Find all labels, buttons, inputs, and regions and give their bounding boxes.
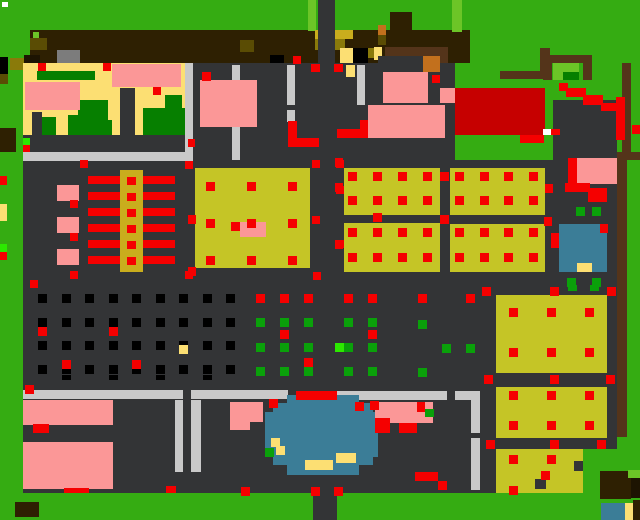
map-dot-1 <box>103 63 111 71</box>
green-plaza-b-dot-2-1 <box>368 367 377 376</box>
field-b-dots-dot-0-3 <box>529 172 538 181</box>
map-dot-66 <box>23 138 30 145</box>
black-plaza-dot-1-0 <box>38 318 47 327</box>
black-plaza-dot-2-0 <box>38 341 47 350</box>
market-aisle-4 <box>127 225 136 233</box>
map-dot-19 <box>70 271 78 279</box>
field-a-dots-dot-1-1 <box>373 196 382 205</box>
bottom-grass-11 <box>633 500 640 520</box>
field-d-dots-dot-1-2 <box>504 253 513 262</box>
map-dot-41 <box>607 287 616 296</box>
big-field-dots-dot-0-2 <box>288 182 297 191</box>
plaza-dashes-2 <box>156 375 165 380</box>
field-c-dots-dot-0-0 <box>348 228 357 237</box>
top-strip-32 <box>563 72 579 80</box>
green-plaza-b-dot-0-0 <box>344 318 353 327</box>
map-dot-8 <box>632 125 640 134</box>
market-stalls-8 <box>88 240 120 248</box>
green-plaza-a-dot-2-1 <box>280 367 289 376</box>
field-d-dots-dot-1-0 <box>455 253 464 262</box>
bottom-buildings-5 <box>375 418 390 433</box>
bottom-grass-4 <box>617 152 640 160</box>
top-strip-4 <box>308 0 316 31</box>
field-d-dots-dot-0-2 <box>504 228 513 237</box>
map-dot-9 <box>80 160 88 168</box>
trees-area-1 <box>0 128 16 152</box>
market-stalls-2 <box>88 192 120 200</box>
field-c-dots-dot-1-3 <box>423 253 432 262</box>
bottom-grass-10 <box>625 503 633 520</box>
map-dot-67 <box>23 145 30 152</box>
big-field-dots-dot-1-1 <box>247 219 256 228</box>
map-dot-68 <box>188 139 195 147</box>
black-plaza-dot-1-1 <box>62 318 71 327</box>
black-plaza-dot-0-1 <box>62 294 71 303</box>
field-c-dots-dot-1-1 <box>373 253 382 262</box>
big-field-dots-dot-2-0 <box>206 256 215 265</box>
trees-area-6 <box>165 95 182 108</box>
green-plaza-a-dot-0-0 <box>256 318 265 327</box>
buildings-20 <box>57 249 79 265</box>
black-plaza-dot-1-3 <box>109 318 118 327</box>
map-dot-50 <box>541 471 550 480</box>
green-plaza-a-dot-1-0 <box>256 343 265 352</box>
field-a-dots-dot-0-0 <box>348 172 357 181</box>
ponds-6 <box>305 460 333 470</box>
map-dot-55 <box>355 402 364 411</box>
field-b-dots-dot-0-1 <box>480 172 489 181</box>
rfield1-dots-dot-0-1 <box>547 308 556 317</box>
field-b-dots-dot-1-2 <box>504 196 513 205</box>
bottom-grass-7 <box>628 470 640 478</box>
field-b-dots-dot-0-0 <box>455 172 464 181</box>
buildings-16 <box>601 103 617 111</box>
light-roads-10 <box>471 400 480 433</box>
black-plaza-dot-1-2 <box>85 318 94 327</box>
market-aisle-2 <box>127 193 136 201</box>
field-b-dots-dot-1-3 <box>529 196 538 205</box>
map-dot-42 <box>484 375 493 384</box>
map-dot-0 <box>38 63 46 71</box>
black-plaza-dot-3-2 <box>85 365 94 374</box>
bottom-grass-9 <box>601 503 625 520</box>
green-plaza-a-dot-0-1 <box>280 318 289 327</box>
black-plaza-dot-2-7 <box>203 341 212 350</box>
black-plaza-dot-2-3 <box>109 341 118 350</box>
map-dot-75 <box>442 344 451 353</box>
map-dot-73 <box>466 294 475 303</box>
map-dot-77 <box>466 344 475 353</box>
map-dot-45 <box>486 440 495 449</box>
black-plaza-dot-3-0 <box>38 365 47 374</box>
market-stalls-0 <box>88 176 120 184</box>
buildings-1 <box>383 72 428 103</box>
green-plaza-red-row-b-dot-0-0 <box>344 294 353 303</box>
map-dot-52 <box>25 385 34 394</box>
map-dot-5 <box>311 64 320 72</box>
map-dot-81 <box>62 360 71 369</box>
plaza-dashes-3 <box>203 375 212 380</box>
green-plaza-red-row-a-dot-0-1 <box>280 294 289 303</box>
big-field-dots-dot-1-0 <box>206 219 215 228</box>
buildings-5 <box>543 129 551 135</box>
map-dot-71 <box>304 358 313 367</box>
market-aisle-5 <box>127 241 136 249</box>
ponds-11 <box>577 263 592 272</box>
map-dot-26 <box>440 215 449 224</box>
bottom-grass-6 <box>600 471 631 499</box>
map-dot-24 <box>335 240 343 249</box>
map-dot-57 <box>311 487 320 496</box>
plaza-dashes-0 <box>62 375 71 380</box>
buildings-12 <box>588 188 607 202</box>
top-strip-20 <box>57 50 80 63</box>
ponds-10 <box>348 453 355 463</box>
market-aisle-3 <box>127 209 136 217</box>
trees-area-8 <box>40 120 55 135</box>
map-dot-3 <box>202 72 211 81</box>
light-roads-12 <box>175 400 183 472</box>
bottom-buildings-8 <box>33 424 49 433</box>
map-dot-38 <box>425 409 434 417</box>
field-b-dots-dot-0-2 <box>504 172 513 181</box>
map-dot-25 <box>440 172 449 181</box>
top-strip-10 <box>30 38 47 50</box>
buildings-4 <box>520 135 544 143</box>
map-dot-61 <box>70 233 78 241</box>
bottom-buildings-1 <box>23 442 113 489</box>
field-d-dots-dot-0-1 <box>480 228 489 237</box>
market-stalls-5 <box>143 208 175 216</box>
light-roads-7 <box>191 390 288 399</box>
buildings-8 <box>423 56 440 72</box>
bottom-grass-3 <box>617 152 627 437</box>
map-dot-32 <box>592 207 601 216</box>
buildings-18 <box>57 185 79 201</box>
big-field-dots-dot-0-0 <box>206 182 215 191</box>
light-roads-11 <box>471 438 480 490</box>
bottom-grass-5 <box>15 502 39 517</box>
buildings-17 <box>616 97 625 140</box>
map-dot-56 <box>241 487 250 496</box>
rfield1-dots-dot-0-0 <box>509 308 518 317</box>
light-roads-13 <box>191 400 201 472</box>
green-plaza-b-dot-0-1 <box>368 318 377 327</box>
market-stalls-9 <box>143 240 175 248</box>
black-plaza-dot-1-8 <box>226 318 235 327</box>
map-dot-29 <box>544 217 552 226</box>
black-plaza-dot-0-7 <box>203 294 212 303</box>
rfield2-dots-dot-1-1 <box>547 421 556 430</box>
black-plaza-dot-3-5 <box>156 365 165 374</box>
map-dot-59 <box>438 481 447 490</box>
bottom-buildings-3 <box>230 422 250 430</box>
trees-area-14 <box>112 64 181 87</box>
map-dot-62 <box>0 176 7 185</box>
top-strip-19 <box>378 35 386 45</box>
top-strip-5 <box>452 0 462 32</box>
field-c-dots-dot-0-2 <box>398 228 407 237</box>
bottom-buildings-6 <box>399 423 417 433</box>
top-strip-6 <box>0 57 8 74</box>
black-plaza-dot-2-8 <box>226 341 235 350</box>
bottom-grass-8 <box>631 478 640 498</box>
bottom-grass-1 <box>313 493 337 520</box>
black-plaza-dot-0-8 <box>226 294 235 303</box>
map-dot-53 <box>269 399 278 408</box>
black-plaza-dot-2-2 <box>85 341 94 350</box>
map-dot-30 <box>600 224 608 233</box>
black-plaza-dot-3-3 <box>109 365 118 374</box>
ponds-9 <box>276 446 285 455</box>
top-strip-18 <box>378 25 386 35</box>
trees-area-10 <box>144 120 185 135</box>
field-a-dots-dot-1-2 <box>398 196 407 205</box>
map-dot-28 <box>545 184 553 193</box>
field-a-dots-dot-0-2 <box>398 172 407 181</box>
field-a-dots-dot-1-0 <box>348 196 357 205</box>
ponds-4 <box>296 391 337 400</box>
black-plaza-dot-3-8 <box>226 365 235 374</box>
buildings-0 <box>200 80 257 127</box>
map-dot-65 <box>0 252 7 260</box>
buildings-21 <box>346 65 355 77</box>
black-plaza-dot-0-4 <box>132 294 141 303</box>
map-dot-27 <box>373 213 382 222</box>
light-roads-9 <box>455 391 480 400</box>
green-plaza-red-row-b-dot-0-1 <box>368 294 377 303</box>
map-dot-60 <box>70 200 78 208</box>
market-stalls-10 <box>88 256 120 264</box>
top-strip-0 <box>2 2 8 7</box>
market-stalls-3 <box>143 192 175 200</box>
fields-8 <box>535 479 546 489</box>
rfield1-dots-dot-1-0 <box>509 348 518 357</box>
ponds-5 <box>551 233 559 248</box>
green-plaza-a-dot-1-1 <box>280 343 289 352</box>
rfield1-dots-dot-1-2 <box>585 348 594 357</box>
map-dot-21 <box>30 280 38 288</box>
top-strip-8 <box>10 58 24 70</box>
field-d-dots-dot-0-0 <box>455 228 464 237</box>
map-dot-78 <box>335 343 344 352</box>
map-dot-79 <box>38 327 47 336</box>
trees-area-13 <box>25 82 80 110</box>
map-dot-22 <box>335 158 343 167</box>
rfield1-dots-dot-0-2 <box>585 308 594 317</box>
game-map-canvas[interactable] <box>0 0 640 520</box>
light-roads-4 <box>357 65 365 105</box>
map-dot-74 <box>418 320 427 329</box>
map-dot-10 <box>185 161 193 169</box>
map-dot-47 <box>597 440 606 449</box>
market-stalls-6 <box>88 224 120 232</box>
buildings-15 <box>583 95 603 105</box>
buildings-23 <box>288 138 319 147</box>
black-plaza-dot-0-2 <box>85 294 94 303</box>
black-plaza-dot-1-5 <box>156 318 165 327</box>
map-dot-58 <box>334 487 343 496</box>
market-stalls-7 <box>143 224 175 232</box>
map-dot-64 <box>0 244 7 252</box>
map-dot-7 <box>432 75 440 83</box>
map-dot-40 <box>550 287 559 296</box>
field-a-dots-dot-1-3 <box>423 196 432 205</box>
field-a-dots-dot-0-3 <box>423 172 432 181</box>
map-dot-14 <box>312 216 320 224</box>
trees-area-9 <box>70 120 112 135</box>
big-field-dots-dot-2-1 <box>247 256 256 265</box>
market-stalls-4 <box>88 208 120 216</box>
field-c-dots-dot-0-3 <box>423 228 432 237</box>
green-plaza-a-dot-0-2 <box>304 318 313 327</box>
green-plaza-red-row-a-dot-0-0 <box>256 294 265 303</box>
map-dot-36 <box>590 285 599 291</box>
field-c-dots-dot-1-2 <box>398 253 407 262</box>
green-plaza-red-row-a-dot-0-2 <box>304 294 313 303</box>
map-dot-4 <box>293 56 301 64</box>
map-dot-11 <box>312 160 320 168</box>
map-dot-20 <box>185 271 193 279</box>
fields-9 <box>574 461 583 471</box>
map-dot-80 <box>109 327 118 336</box>
field-d-dots-dot-0-3 <box>529 228 538 237</box>
trees-area-15 <box>23 135 195 152</box>
top-strip-11 <box>240 40 254 52</box>
bottom-buildings-2 <box>230 402 263 422</box>
light-roads-3 <box>287 65 295 105</box>
light-roads-0 <box>23 152 193 161</box>
black-plaza-dot-0-5 <box>156 294 165 303</box>
black-plaza-dot-1-7 <box>203 318 212 327</box>
top-strip-21 <box>270 55 284 63</box>
map-dot-6 <box>334 64 343 72</box>
buildings-9 <box>577 158 617 184</box>
black-plaza-dot-2-4 <box>132 341 141 350</box>
field-d-dots-dot-1-3 <box>529 253 538 262</box>
rfield2-dots-dot-0-2 <box>585 391 594 400</box>
map-dot-83 <box>179 345 188 354</box>
plaza-dashes-1 <box>109 375 118 380</box>
black-plaza-dot-0-3 <box>109 294 118 303</box>
green-plaza-b-dot-1-0 <box>344 343 353 352</box>
black-plaza-dot-0-6 <box>179 294 188 303</box>
fields-5 <box>496 295 607 373</box>
top-strip-27 <box>543 55 592 63</box>
field-d-dots-dot-1-1 <box>480 253 489 262</box>
map-dot-72 <box>418 294 427 303</box>
rfield2-dots-dot-0-1 <box>547 391 556 400</box>
top-strip-29 <box>583 63 592 80</box>
buildings-7 <box>440 88 455 103</box>
buildings-25 <box>337 129 368 138</box>
market-stalls-11 <box>143 256 175 264</box>
map-dot-51 <box>509 486 518 495</box>
map-dot-39 <box>482 287 491 296</box>
top-strip-22 <box>318 0 335 63</box>
green-plaza-a-dot-2-2 <box>304 367 313 376</box>
green-plaza-b-dot-2-0 <box>344 367 353 376</box>
map-dot-43 <box>550 375 559 384</box>
map-dot-17 <box>188 215 196 224</box>
top-strip-7 <box>0 74 8 84</box>
map-dot-46 <box>550 440 559 449</box>
trees-area-11 <box>120 88 135 138</box>
map-dot-49 <box>547 455 556 464</box>
black-plaza-dot-1-4 <box>132 318 141 327</box>
green-plaza-a-dot-1-2 <box>304 343 313 352</box>
black-plaza-dot-2-1 <box>62 341 71 350</box>
map-dot-82 <box>132 360 141 369</box>
bottom-buildings-7 <box>417 402 425 412</box>
map-dot-23 <box>335 183 343 192</box>
field-b-dots-dot-1-1 <box>480 196 489 205</box>
bottom-buildings-11 <box>415 472 438 481</box>
black-plaza-dot-2-5 <box>156 341 165 350</box>
black-plaza-dot-1-6 <box>179 318 188 327</box>
trees-area-2 <box>37 71 95 80</box>
top-strip-2 <box>390 12 412 33</box>
map-dot-35 <box>568 285 577 291</box>
rfield2-dots-dot-1-2 <box>585 421 594 430</box>
green-plaza-a-dot-2-0 <box>256 367 265 376</box>
black-plaza-dot-3-6 <box>179 365 188 374</box>
top-strip-28 <box>543 63 552 80</box>
green-plaza-b-dot-1-1 <box>368 343 377 352</box>
map-dot-69 <box>280 330 289 339</box>
field-b-dots-dot-1-0 <box>455 196 464 205</box>
field-c-dots-dot-0-1 <box>373 228 382 237</box>
market-stalls-1 <box>143 176 175 184</box>
field-a-dots-dot-0-1 <box>373 172 382 181</box>
buildings-3 <box>455 88 545 135</box>
field-c-dots-dot-1-0 <box>348 253 357 262</box>
rfield2-dots-dot-0-0 <box>509 391 518 400</box>
map-dot-37 <box>265 448 274 457</box>
big-field-dots-dot-0-1 <box>247 182 256 191</box>
map-dot-84 <box>231 222 240 231</box>
market-aisle-1 <box>127 177 136 185</box>
map-dot-2 <box>153 87 161 95</box>
map-dot-70 <box>368 330 377 339</box>
buildings-11 <box>565 183 590 192</box>
buildings-19 <box>57 217 79 233</box>
map-dot-54 <box>370 401 379 410</box>
black-plaza-dot-0-0 <box>38 294 47 303</box>
big-field-dots-dot-2-2 <box>288 256 297 265</box>
map-dot-76 <box>418 368 427 377</box>
rfield2-dots-dot-1-0 <box>509 421 518 430</box>
map-dot-31 <box>576 207 585 216</box>
buildings-6 <box>551 129 560 135</box>
black-plaza-dot-3-7 <box>203 365 212 374</box>
big-field-dots-dot-1-2 <box>288 219 297 228</box>
map-dot-16 <box>313 272 321 280</box>
market-aisle-6 <box>127 257 136 265</box>
map-dot-44 <box>606 375 615 384</box>
bottom-buildings-0 <box>23 400 113 425</box>
map-dot-63 <box>0 204 7 221</box>
map-dot-48 <box>509 455 518 464</box>
buildings-26 <box>368 111 380 138</box>
light-roads-6 <box>23 390 183 399</box>
rfield1-dots-dot-1-1 <box>547 348 556 357</box>
